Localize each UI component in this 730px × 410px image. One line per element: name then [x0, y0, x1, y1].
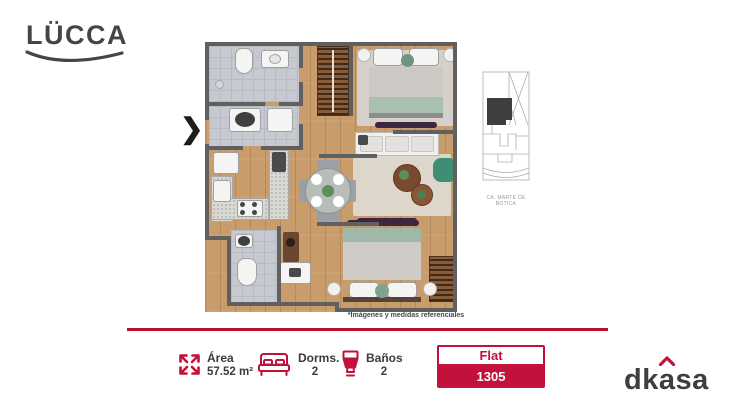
unit-number: 1305: [437, 366, 545, 388]
wall: [227, 236, 231, 306]
wall: [279, 102, 303, 106]
area-value: 57.52 m²: [207, 365, 255, 379]
building-footprint: [487, 98, 512, 125]
wall: [209, 146, 243, 150]
wall: [319, 154, 377, 158]
bed-1-throw: [369, 97, 443, 113]
toilet-icon: [341, 350, 360, 378]
dorms-value: 2: [298, 365, 332, 379]
bed-2-cushion: [375, 284, 389, 298]
bed-2-headboard: [343, 228, 421, 242]
kitchen-sink: [213, 180, 231, 202]
bed-1-cushion: [401, 54, 414, 67]
plate: [311, 174, 322, 185]
dorms-label: Dorms.: [298, 351, 332, 365]
site-map: CA. MARTE DE BOTICA: [477, 70, 535, 207]
brand-logo-swoosh: [24, 50, 126, 63]
wall: [205, 42, 209, 120]
floor-plan: [205, 42, 457, 312]
laundry-unit: [267, 108, 293, 132]
wall: [261, 146, 303, 150]
toilet-1: [235, 48, 253, 74]
wall: [299, 124, 303, 148]
area-spec: Área 57.52 m²: [207, 351, 255, 379]
plant: [417, 190, 426, 199]
bed-icon: [257, 352, 291, 377]
wall: [277, 226, 281, 306]
developer-logo-pre: dk: [624, 364, 659, 397]
side-cabinet: [283, 232, 299, 262]
sink-bowl-2-dark: [235, 112, 255, 127]
plate: [333, 174, 344, 185]
dorms-spec: Dorms. 2: [298, 351, 332, 379]
area-label: Área: [207, 351, 255, 365]
shower-drain: [215, 80, 224, 89]
banos-label: Baños: [366, 351, 402, 365]
burner: [252, 210, 257, 215]
bed-1-blanket: [369, 67, 443, 97]
plant: [399, 170, 409, 180]
burner: [240, 202, 245, 207]
wall: [349, 42, 353, 116]
kitchen-appliance: [272, 152, 286, 172]
brand-logo-text: LÜCCA: [26, 20, 128, 51]
bed-1-foot: [369, 113, 443, 118]
developer-logo-post: sa: [675, 364, 708, 397]
plate: [333, 196, 344, 207]
sink-bowl-3-dark: [238, 236, 250, 246]
site-map-drawing: [478, 70, 534, 188]
vase: [286, 238, 295, 247]
nightstand: [423, 282, 437, 296]
plate: [311, 196, 322, 207]
wall: [335, 308, 457, 312]
disclaimer-text: *Imágenes y medidas referenciales: [320, 312, 492, 319]
nightstand: [327, 282, 341, 296]
wall: [453, 42, 457, 312]
banos-spec: Baños 2: [366, 351, 402, 379]
sofa-cushion: [385, 136, 408, 152]
burner: [252, 202, 257, 207]
developer-logo-accent: a: [659, 364, 676, 396]
wall: [227, 302, 339, 306]
unit-badge: Flat 1305: [437, 345, 545, 388]
toilet-3: [237, 258, 257, 286]
banos-value: 2: [366, 365, 402, 379]
entrance-arrow: ❯: [180, 112, 203, 145]
expand-arrows-icon: [177, 352, 202, 377]
developer-logo: dk a sa: [624, 364, 709, 397]
sink-bowl-1: [269, 54, 281, 64]
centerpiece-plant: [322, 185, 334, 197]
sofa-pillow: [358, 135, 368, 145]
bed-1-pillow: [373, 48, 403, 66]
burner: [240, 210, 245, 215]
wall: [393, 130, 457, 134]
divider-rule: [127, 328, 608, 331]
sofa-cushion: [411, 136, 434, 152]
wall: [205, 144, 209, 240]
unit-type-label: Flat: [437, 345, 545, 366]
bed-2-blanket: [343, 242, 421, 280]
closet-hall-divider: [332, 50, 334, 112]
bench-runner-1: [375, 122, 437, 128]
nightstand: [357, 48, 371, 62]
wall: [205, 42, 457, 46]
laptop: [289, 268, 301, 277]
site-map-caption: CA. MARTE DE BOTICA: [477, 195, 535, 207]
wall: [209, 102, 265, 106]
bed-2-pillow: [387, 282, 417, 298]
wall: [317, 222, 379, 226]
roof-icon: [658, 356, 676, 366]
brand-logo: LÜCCA: [26, 20, 128, 51]
fridge: [213, 152, 239, 174]
wall: [299, 42, 303, 68]
